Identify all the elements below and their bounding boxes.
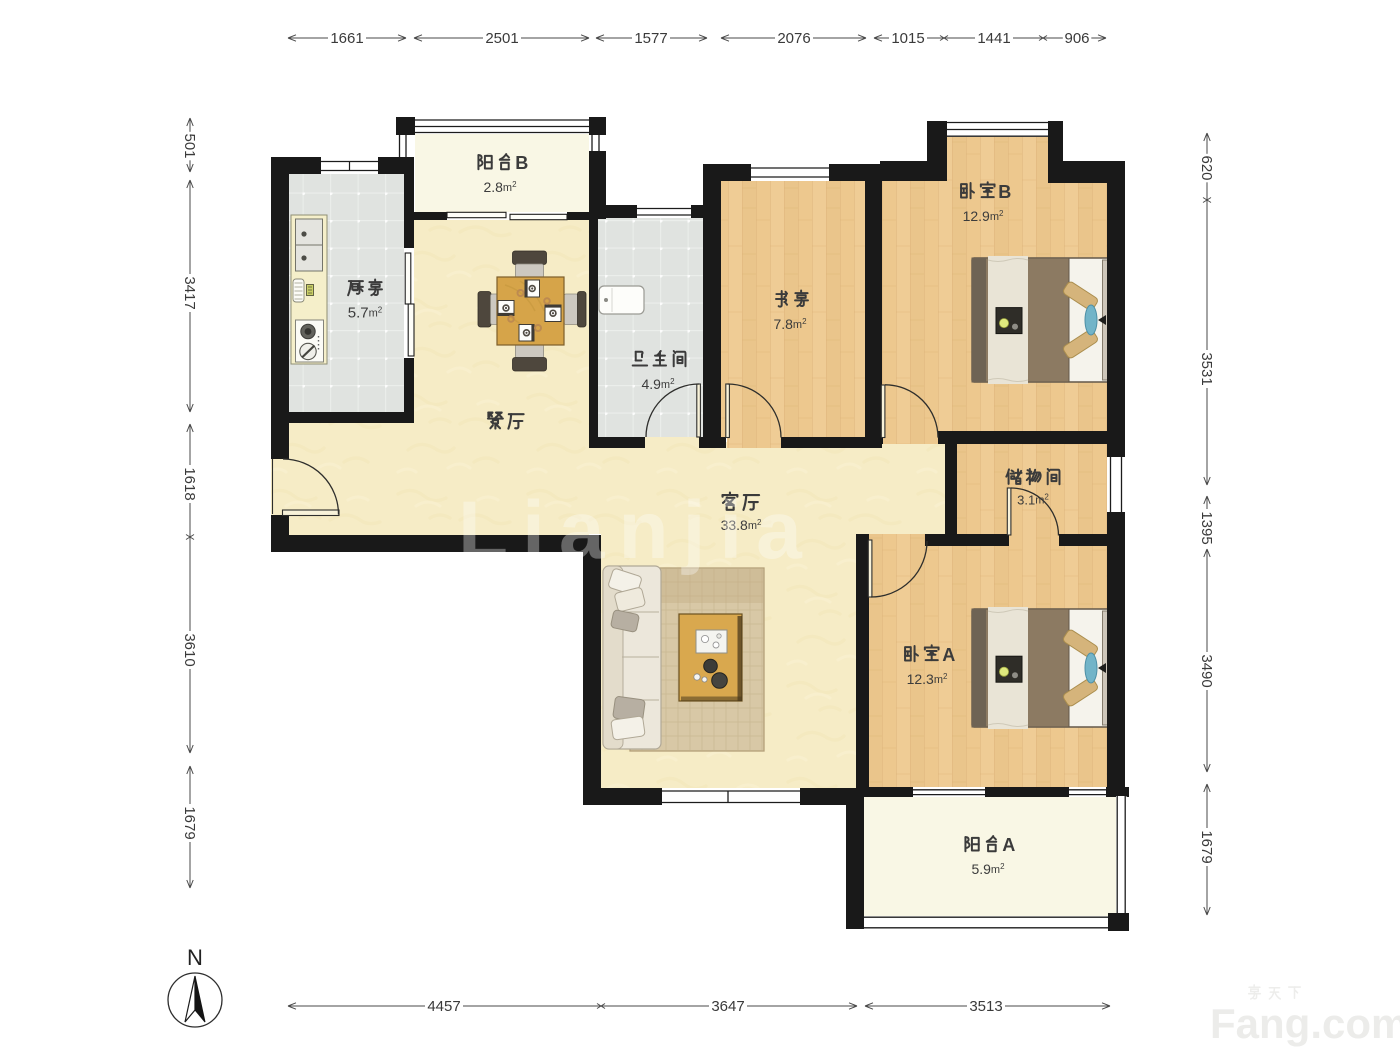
svg-text:1679: 1679: [181, 806, 198, 839]
svg-text:2076: 2076: [777, 30, 810, 47]
svg-text:3513: 3513: [969, 998, 1002, 1015]
svg-text:1661: 1661: [330, 30, 363, 47]
svg-text:2501: 2501: [485, 30, 518, 47]
svg-text:A: A: [942, 645, 955, 665]
svg-text:5.9m2: 5.9m2: [971, 861, 1005, 877]
svg-text:501: 501: [181, 133, 198, 158]
svg-text:5.7m2: 5.7m2: [348, 304, 383, 321]
svg-text:1441: 1441: [977, 30, 1010, 47]
svg-text:1679: 1679: [1198, 830, 1215, 863]
svg-text:620: 620: [1198, 155, 1215, 180]
svg-text:1577: 1577: [634, 30, 667, 47]
svg-text:4.9m2: 4.9m2: [641, 376, 675, 392]
svg-text:3417: 3417: [181, 276, 198, 309]
svg-text:Fang.com: Fang.com: [1210, 1000, 1400, 1047]
svg-text:4457: 4457: [427, 998, 460, 1015]
svg-text:N: N: [187, 945, 203, 970]
svg-text:906: 906: [1064, 30, 1089, 47]
svg-text:7.8m2: 7.8m2: [773, 316, 807, 332]
svg-text:3531: 3531: [1198, 352, 1215, 385]
svg-text:B: B: [515, 153, 528, 173]
svg-text:12.9m2: 12.9m2: [963, 208, 1004, 224]
svg-text:3490: 3490: [1198, 654, 1215, 687]
svg-text:1618: 1618: [181, 467, 198, 500]
svg-text:B: B: [998, 182, 1011, 202]
svg-text:3647: 3647: [711, 998, 744, 1015]
svg-text:1015: 1015: [891, 30, 924, 47]
svg-text:2.8m2: 2.8m2: [483, 179, 517, 195]
svg-text:12.3m2: 12.3m2: [907, 671, 948, 687]
svg-text:1395: 1395: [1198, 511, 1215, 544]
svg-text:A: A: [1002, 835, 1015, 855]
svg-text:Lianjia: Lianjia: [458, 485, 816, 576]
svg-text:3610: 3610: [181, 633, 198, 666]
